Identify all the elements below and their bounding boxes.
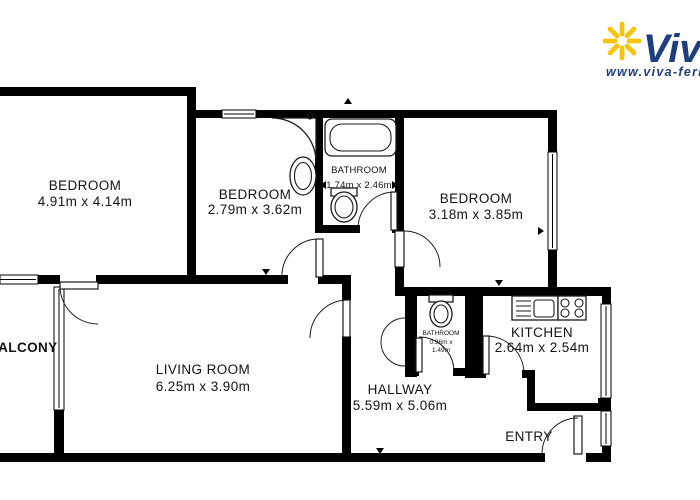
room-dims1-bathroom-small: 0.96m x bbox=[429, 339, 453, 346]
wall-segment bbox=[453, 368, 483, 376]
wall-segment bbox=[342, 336, 351, 462]
room-dims-living-room: 6.25m x 3.90m bbox=[156, 379, 251, 394]
bathtub-icon bbox=[325, 119, 396, 156]
door-bedroom2 bbox=[282, 239, 323, 277]
window-bedroom2-top bbox=[222, 110, 256, 118]
wall-segment bbox=[586, 453, 611, 462]
walls bbox=[0, 87, 611, 462]
door-bedroom3 bbox=[395, 231, 440, 267]
room-dims-hallway: 5.59m x 5.06m bbox=[353, 398, 448, 413]
room-label-hallway: HALLWAY bbox=[368, 382, 433, 397]
shower-icon bbox=[272, 113, 316, 160]
door-bedroom1 bbox=[60, 282, 98, 324]
window-bedroom3-right bbox=[548, 152, 557, 250]
arrow-down-icon bbox=[495, 280, 503, 286]
wall-segment bbox=[315, 225, 360, 233]
room-labels: BEDROOM 4.91m x 4.14m BEDROOM 2.79m x 3.… bbox=[0, 165, 589, 444]
wall-segment bbox=[54, 410, 64, 458]
room-dims-bedroom1: 4.91m x 4.14m bbox=[38, 194, 133, 209]
room-dims2-bathroom-small: 1.49m bbox=[432, 347, 450, 354]
floor-plan: BEDROOM 4.91m x 4.14m BEDROOM 2.79m x 3.… bbox=[0, 0, 700, 500]
room-label-bathroom-main: BATHROOM bbox=[331, 165, 387, 176]
kitchen-sink-icon bbox=[512, 296, 558, 320]
wall-segment bbox=[465, 287, 483, 377]
wall-segment bbox=[187, 96, 196, 280]
stove-icon bbox=[558, 296, 586, 320]
room-label-living-room: LIVING ROOM bbox=[156, 362, 250, 377]
door-living-room bbox=[310, 300, 350, 338]
room-label-bathroom-small: BATHROOM bbox=[422, 330, 459, 337]
brand-url-text: www.viva-feri bbox=[606, 65, 700, 79]
room-dims-kitchen: 2.64m x 2.54m bbox=[495, 340, 590, 355]
room-label-bedroom3: BEDROOM bbox=[440, 191, 513, 206]
toilet-main-icon bbox=[331, 188, 357, 222]
wall-segment bbox=[0, 453, 545, 462]
room-label-bedroom2: BEDROOM bbox=[219, 187, 292, 202]
room-label-balcony: BALCONY bbox=[0, 340, 58, 355]
wall-segment bbox=[527, 370, 535, 411]
room-dims-bedroom2: 2.79m x 3.62m bbox=[208, 202, 303, 217]
window-entry-right bbox=[601, 411, 611, 446]
toilet-small-icon bbox=[429, 295, 453, 327]
closet-doors-hallway bbox=[381, 318, 405, 366]
wall-segment bbox=[395, 266, 404, 296]
window-kitchen-right bbox=[601, 304, 611, 398]
wall-segment bbox=[0, 87, 196, 96]
logo: Viva www.viva-feri bbox=[605, 24, 700, 79]
arrow-up-icon bbox=[344, 98, 352, 104]
floor-plan-page: BEDROOM 4.91m x 4.14m BEDROOM 2.79m x 3.… bbox=[0, 0, 700, 500]
wall-segment bbox=[38, 275, 60, 284]
sink-icon bbox=[290, 157, 316, 195]
arrow-down-icon bbox=[262, 269, 270, 275]
room-label-bedroom1: BEDROOM bbox=[49, 178, 122, 193]
room-label-kitchen: KITCHEN bbox=[511, 325, 573, 340]
wall-segment bbox=[342, 283, 351, 300]
door-bathroom-main bbox=[358, 192, 397, 230]
star-icon bbox=[605, 24, 639, 58]
room-dims-bathroom-main: 1.74m x 2.46m bbox=[326, 180, 391, 191]
arrow-right-icon bbox=[538, 227, 544, 235]
room-dims-bedroom3: 3.18m x 3.85m bbox=[429, 207, 524, 222]
window-balcony-top bbox=[0, 275, 38, 284]
wall-segment bbox=[530, 403, 611, 411]
room-label-entry: ENTRY bbox=[505, 429, 553, 444]
wall-segment bbox=[405, 287, 417, 377]
